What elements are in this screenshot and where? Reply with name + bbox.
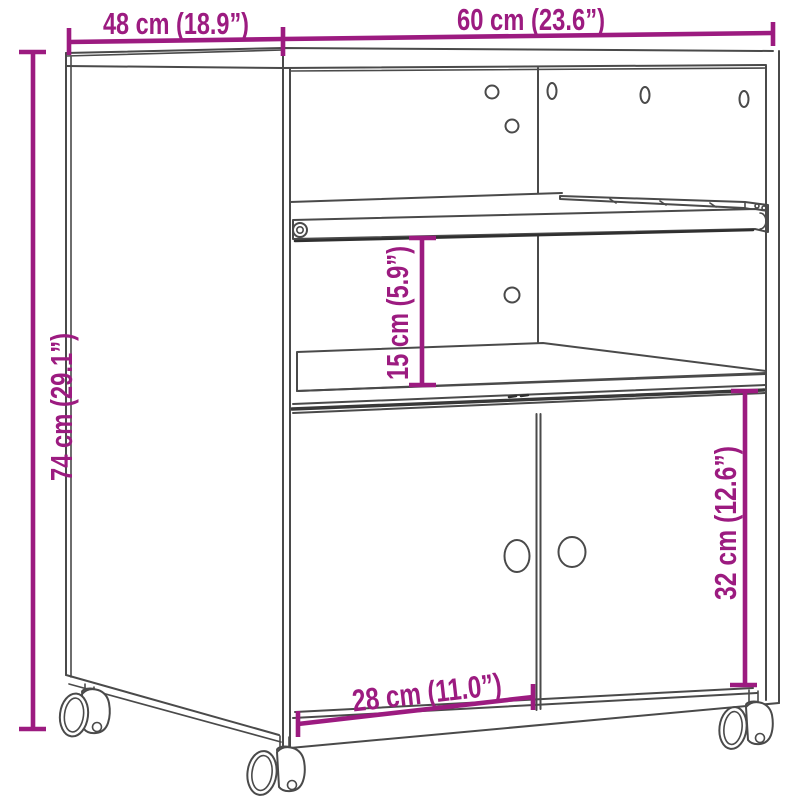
door-knob-left [505, 540, 530, 572]
label-width: 60 cm (23.6”) [457, 2, 605, 37]
label-door-height: 32 cm (12.6”) [708, 446, 743, 600]
printer-stand-drawing: 48 cm (18.9”) 60 cm (23.6”) 74 cm (29.1”… [0, 0, 800, 800]
shelf-shadow [292, 390, 764, 409]
assembly-hole [486, 86, 499, 99]
assembly-slot [641, 87, 650, 103]
caster-front-left [245, 736, 305, 797]
caster-wheel [245, 749, 279, 796]
doors [293, 393, 765, 712]
label-shelf-clearance: 15 cm (5.9”) [380, 246, 415, 380]
caster-back-left [57, 684, 109, 738]
top-edge [66, 48, 773, 53]
door-top-edge [293, 393, 765, 413]
pull-out-tray [290, 193, 768, 241]
shelf-surface [297, 343, 766, 391]
label-depth: 48 cm (18.9”) [103, 6, 249, 41]
assembly-slot [740, 91, 749, 107]
tray-board-edge [290, 193, 562, 202]
caster-bracket [277, 747, 305, 791]
tray-rail-end-cap [293, 223, 307, 237]
door-gap [537, 414, 541, 710]
caster-bracket [746, 702, 773, 744]
top-band-bottom [66, 65, 766, 68]
assembly-slot [548, 83, 557, 99]
caster-wheel [717, 706, 749, 751]
caster-front-right [717, 690, 773, 750]
door-knob-right [559, 537, 586, 567]
assembly-hole [506, 120, 519, 133]
bottom-shelf [292, 343, 766, 409]
label-height: 74 cm (29.1”) [44, 333, 79, 481]
dimension-height [19, 52, 46, 729]
product-dimension-diagram: 48 cm (18.9”) 60 cm (23.6”) 74 cm (29.1”… [0, 0, 800, 800]
assembly-hole [505, 288, 520, 303]
